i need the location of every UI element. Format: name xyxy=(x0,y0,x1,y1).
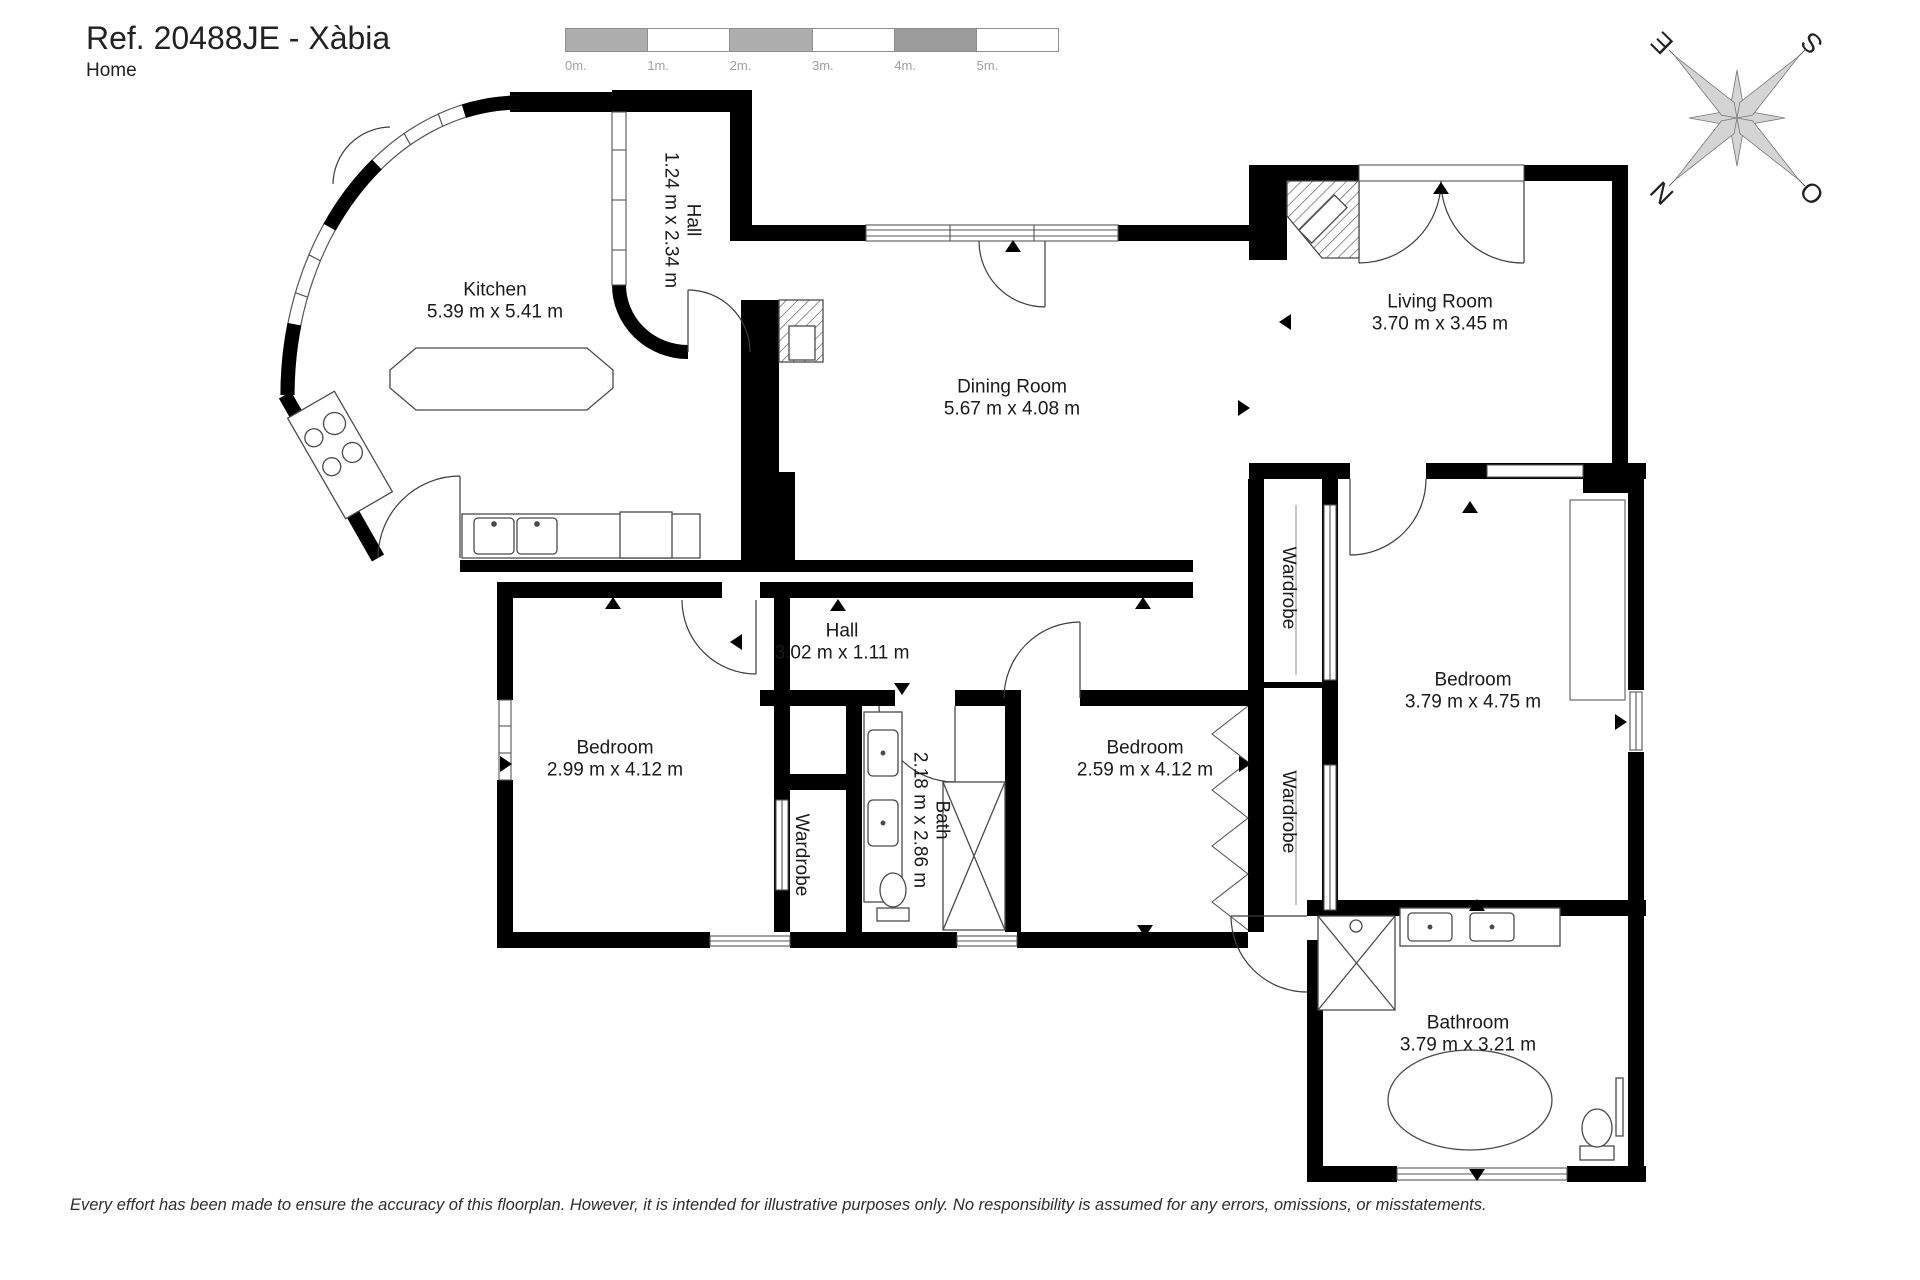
room-label: Dining Room5.67 m x 4.08 m xyxy=(944,377,1080,422)
room-dimensions: 2.18 m x 2.86 m xyxy=(908,752,930,888)
room-name: Wardrobe xyxy=(790,814,812,897)
room-name: Dining Room xyxy=(944,377,1080,399)
room-name: Hall xyxy=(681,152,703,288)
room-label: Bathroom3.79 m x 3.21 m xyxy=(1400,1013,1536,1058)
room-dimensions: 5.39 m x 5.41 m xyxy=(427,302,563,324)
room-label: Hall1.24 m x 2.34 m xyxy=(659,152,704,288)
room-label: Bedroom3.79 m x 4.75 m xyxy=(1405,670,1541,715)
room-name: Hall xyxy=(775,621,910,643)
room-dimensions: 3.79 m x 3.21 m xyxy=(1400,1035,1536,1057)
room-label: Wardrobe xyxy=(1277,771,1299,854)
bedroom-builtin xyxy=(1570,500,1625,700)
bathroom-toilet-tank xyxy=(1580,1146,1614,1160)
room-name: Bedroom xyxy=(1077,738,1213,760)
room-name: Kitchen xyxy=(427,280,563,302)
room-label: Kitchen5.39 m x 5.41 m xyxy=(427,280,563,325)
kitchen-island xyxy=(390,348,613,410)
room-label: Bedroom2.99 m x 4.12 m xyxy=(547,738,683,783)
room-name: Living Room xyxy=(1372,292,1508,314)
bath-toilet xyxy=(880,873,906,907)
bathroom-tub xyxy=(1388,1050,1552,1150)
floorplan-page: Ref. 20488JE - Xàbia Home 0m.1m.2m.3m.4m… xyxy=(0,0,1920,1280)
bath-toilet-tank xyxy=(877,908,909,921)
room-name: Bedroom xyxy=(1405,670,1541,692)
room-label: Wardrobe xyxy=(790,814,812,897)
room-dimensions: 2.59 m x 4.12 m xyxy=(1077,760,1213,782)
floorplan-drawing: N S E O xyxy=(0,0,1920,1280)
room-name: Wardrobe xyxy=(1277,771,1299,854)
room-label: Hall3.02 m x 1.11 m xyxy=(775,621,910,666)
kitchen-stove xyxy=(288,391,393,518)
room-label: Living Room3.70 m x 3.45 m xyxy=(1372,292,1508,337)
kitchen-dishwasher xyxy=(620,512,672,558)
room-dimensions: 5.67 m x 4.08 m xyxy=(944,399,1080,421)
room-name: Bathroom xyxy=(1400,1013,1536,1035)
room-dimensions: 1.24 m x 2.34 m xyxy=(659,152,681,288)
room-dimensions: 3.79 m x 4.75 m xyxy=(1405,692,1541,714)
room-dimensions: 3.02 m x 1.11 m xyxy=(775,643,910,665)
disclaimer-text: Every effort has been made to ensure the… xyxy=(70,1196,1487,1215)
room-name: Bedroom xyxy=(547,738,683,760)
room-name: Wardrobe xyxy=(1277,547,1299,630)
room-label: Bedroom2.59 m x 4.12 m xyxy=(1077,738,1213,783)
room-dimensions: 3.70 m x 3.45 m xyxy=(1372,314,1508,336)
room-dimensions: 2.99 m x 4.12 m xyxy=(547,760,683,782)
room-name: Bath xyxy=(930,752,952,888)
room-label: Wardrobe xyxy=(1277,547,1299,630)
room-label: Bath2.18 m x 2.86 m xyxy=(908,752,953,888)
bathroom-toilet xyxy=(1582,1109,1612,1147)
folding-doors xyxy=(1212,706,1248,930)
